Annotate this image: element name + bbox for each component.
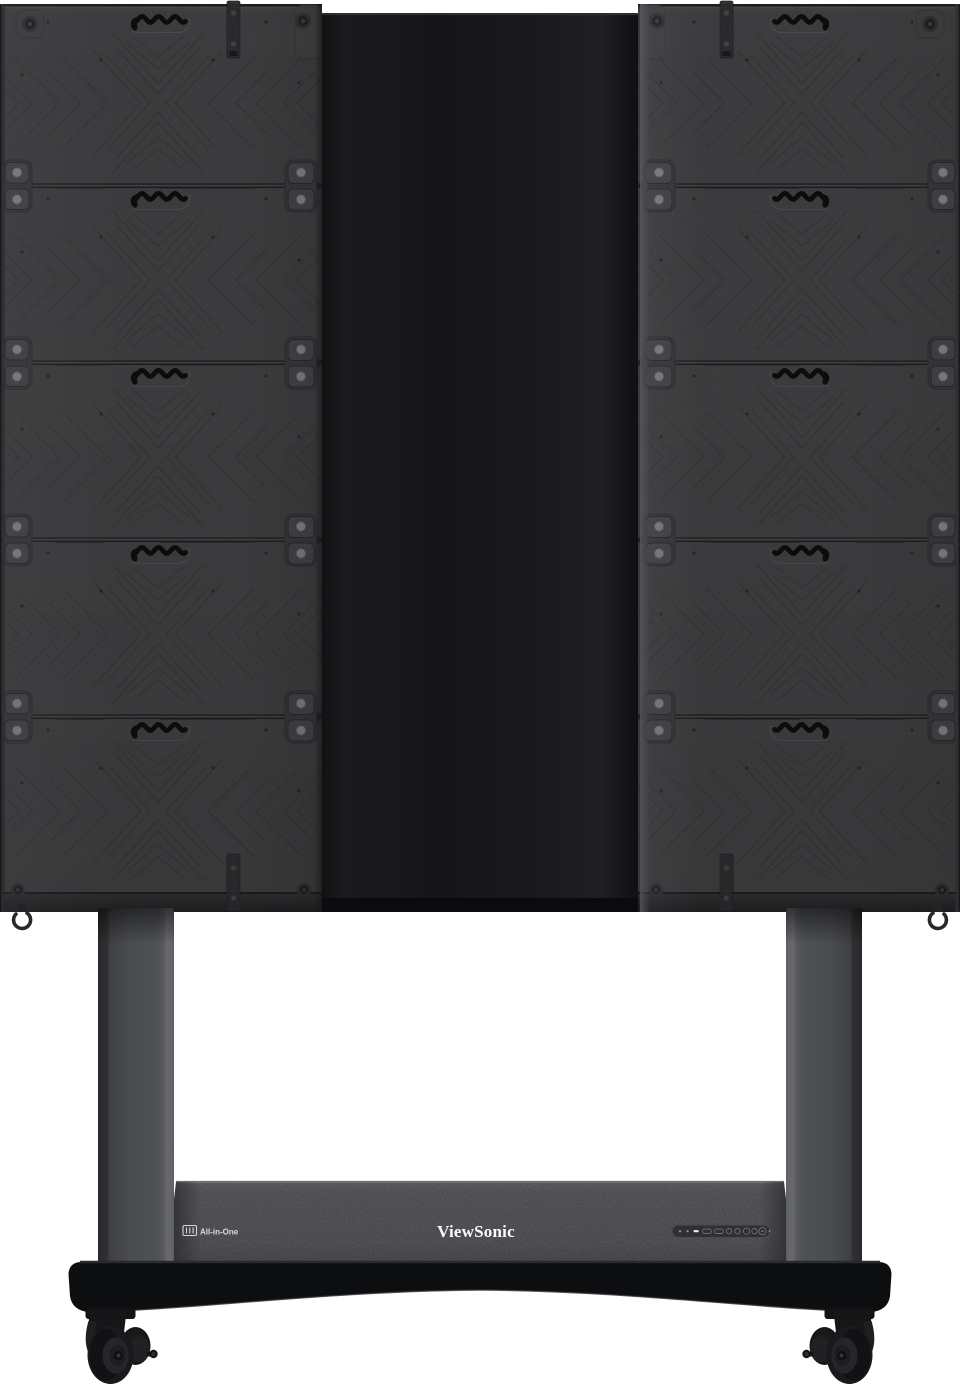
svg-text:All-in-One: All-in-One	[200, 1228, 239, 1237]
svg-text:ViewSonic: ViewSonic	[437, 1222, 515, 1241]
